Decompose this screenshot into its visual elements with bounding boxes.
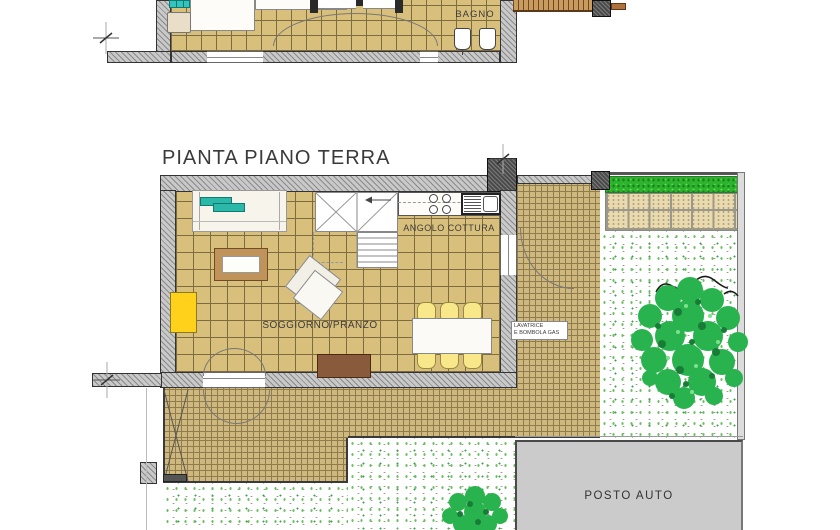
- house-left-wall: [160, 190, 176, 388]
- balcony-deck: [513, 0, 593, 12]
- dining-chair: [463, 302, 482, 319]
- upper-door-leaf-2: [363, 0, 395, 9]
- sink-drainer-icon: [464, 196, 481, 212]
- gate-cross-icon: [162, 389, 190, 482]
- dining-chair: [463, 352, 482, 369]
- patio-top-wall: [517, 175, 592, 184]
- house-right-door-gap: [500, 235, 517, 275]
- sofa-armrest-line: [279, 192, 280, 230]
- dining-chair: [440, 302, 459, 319]
- left-boundary-pillar: [140, 462, 157, 484]
- washing-machine-note: LAVATRICE E BOMBOLA GAS: [511, 321, 568, 340]
- floor-plan-drawing: BAGNO PIANTA PIANO TERRA ANG: [0, 0, 840, 530]
- stove-burner-icon: [442, 194, 451, 203]
- sideboard: [317, 354, 371, 378]
- upper-door-leaf-1: [318, 0, 356, 9]
- stove-burner-icon: [429, 194, 438, 203]
- laundry-label-line1: LAVATRICE: [514, 323, 565, 330]
- balcony-deck-end: [611, 3, 626, 10]
- dining-chair: [417, 302, 436, 319]
- house-right-wall: [500, 190, 517, 388]
- gravel-bottom-left: [163, 483, 348, 530]
- room-label-kitchen: ANGOLO COTTURA: [398, 223, 500, 233]
- parking-area: POSTO AUTO: [515, 440, 743, 530]
- upper-wall-stub-3: [395, 0, 403, 13]
- paver-squares: [605, 193, 738, 231]
- laundry-label-line2: E BOMBOLA GAS: [514, 330, 565, 337]
- upper-window-left: [207, 51, 263, 63]
- grass-strip: [605, 176, 738, 193]
- page-title: PIANTA PIANO TERRA: [162, 147, 390, 170]
- dimension-marker-icon: [94, 362, 120, 398]
- tree-small: [440, 486, 510, 530]
- upper-wall-stub-1: [310, 0, 318, 13]
- bidet-fixture: [479, 28, 496, 50]
- yellow-cabinet: [170, 292, 197, 333]
- terrace-wall-stub: [163, 474, 187, 482]
- sofa-cushion-teal: [213, 203, 245, 212]
- parking-label: POSTO AUTO: [517, 490, 741, 502]
- upper-stool: [167, 12, 191, 33]
- toilet-fixture: [454, 28, 471, 50]
- dining-table: [412, 318, 492, 354]
- coffee-table-top: [222, 256, 260, 273]
- dimension-marker-icon: [490, 144, 516, 174]
- stove-burner-icon: [429, 205, 438, 214]
- upper-counter-deep: [190, 0, 255, 31]
- upper-sink-teal: [169, 0, 190, 8]
- room-label-bagno: BAGNO: [440, 9, 510, 20]
- toilet-mark: [462, 50, 463, 55]
- dining-chair: [440, 352, 459, 369]
- patio-post: [591, 171, 610, 190]
- balcony-post: [592, 0, 611, 17]
- terrace-arm-tiles: [163, 438, 348, 483]
- stove-burner-icon: [442, 205, 451, 214]
- boundary-guide-line: [146, 388, 147, 530]
- staircase: [315, 192, 398, 268]
- garden-top-edge: [605, 172, 738, 175]
- dining-chair: [417, 352, 436, 369]
- upper-wall-stub-2: [356, 0, 363, 6]
- gravel-parking-separator: [515, 436, 743, 437]
- dimension-marker-icon: [93, 22, 119, 54]
- upper-window-right: [420, 51, 438, 63]
- room-label-living: SOGGIORNO/PRANZO: [240, 320, 400, 331]
- tree-large: [628, 272, 752, 416]
- sofa-seat-line: [193, 221, 286, 222]
- sink-basin-icon: [483, 196, 498, 212]
